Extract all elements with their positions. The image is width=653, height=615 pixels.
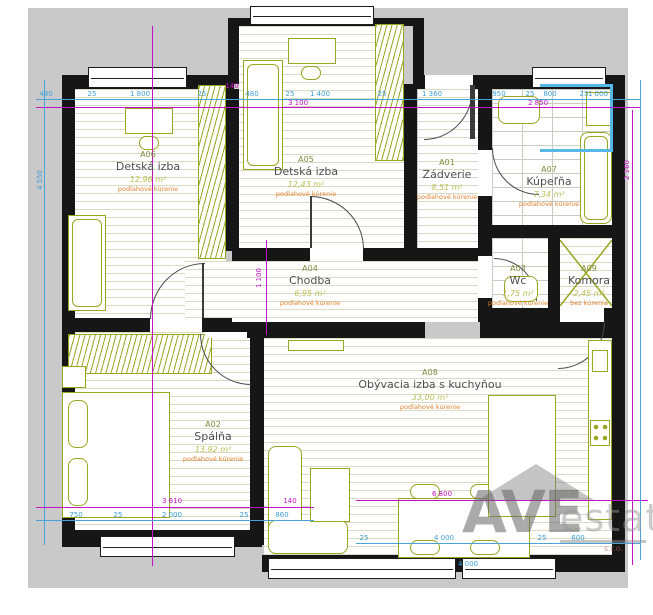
dimension-label: 750 bbox=[69, 511, 82, 519]
dimension-label: 4 000 bbox=[434, 534, 454, 542]
room-name: Obývacia izba s kuchyňou bbox=[355, 378, 505, 392]
window bbox=[88, 67, 187, 88]
room-label-a08: A08Obývacia izba s kuchyňou33,00 m²podla… bbox=[355, 368, 505, 412]
dimension-label: 2 160 bbox=[623, 160, 631, 180]
room-name: Detská izba bbox=[73, 160, 223, 174]
dimension-label: 25 bbox=[286, 90, 295, 98]
dimension-label: 4 550 bbox=[36, 170, 44, 190]
wall bbox=[478, 225, 625, 238]
dimension-label: 2 000 bbox=[162, 511, 182, 519]
door-leaf bbox=[202, 263, 204, 318]
dimension-line bbox=[36, 107, 640, 108]
logo-underline bbox=[560, 540, 646, 543]
door-gap bbox=[150, 318, 202, 332]
room-label-a02: A02Spálňa13,92 m²podlahové kúrenie bbox=[138, 420, 288, 464]
room-code: A02 bbox=[138, 420, 288, 430]
room-area: 13,92 m² bbox=[138, 445, 288, 455]
dimension-label: 25 bbox=[526, 90, 535, 98]
window bbox=[100, 536, 235, 557]
dimension-label: 1 360 bbox=[422, 90, 442, 98]
pillow bbox=[68, 458, 88, 506]
wall bbox=[228, 18, 239, 84]
room-name: Spálňa bbox=[138, 430, 288, 444]
chair bbox=[139, 136, 159, 150]
dimension-line bbox=[640, 80, 641, 560]
room-label-a09: A09Komora2,45 m²bez kúrenia bbox=[514, 264, 653, 308]
room-name: Komora bbox=[514, 274, 653, 288]
room-label-a05: A05Detská izba12,43 m²podlahové kúrenie bbox=[231, 155, 381, 199]
room-area: 12,96 m² bbox=[73, 175, 223, 185]
dimension-line bbox=[36, 507, 314, 508]
room-note: podlahové kúrenie bbox=[138, 455, 288, 463]
dimension-label: 1 000 bbox=[588, 90, 608, 98]
dimension-label: 2 850 bbox=[528, 99, 548, 107]
room-note: podlahové kúrenie bbox=[73, 185, 223, 193]
dimension-line bbox=[44, 80, 45, 545]
room-note: podlahové kúrenie bbox=[231, 190, 381, 198]
logo-word-3: s.r.o. bbox=[604, 544, 623, 553]
sofa bbox=[268, 520, 348, 554]
kitchen-sink bbox=[592, 350, 608, 372]
dimension-label: 25 bbox=[240, 511, 249, 519]
construction-line bbox=[152, 26, 153, 566]
dimension-label: 25 bbox=[114, 511, 123, 519]
room-note: podlahové kúrenie bbox=[355, 403, 505, 411]
room-code: A05 bbox=[231, 155, 381, 165]
room-area: 6,95 m² bbox=[235, 289, 385, 299]
dimension-label: 1 400 bbox=[310, 90, 330, 98]
dimension-label: 25 bbox=[378, 90, 387, 98]
dimension-label: 950 bbox=[492, 90, 505, 98]
logo-word-2: estate bbox=[560, 496, 653, 540]
wall bbox=[62, 318, 232, 332]
dimension-label: 140 bbox=[283, 497, 296, 505]
dimension-label: 6 800 bbox=[432, 490, 452, 498]
door-leaf bbox=[310, 196, 312, 248]
dimension-label: 1 800 bbox=[130, 90, 150, 98]
bed bbox=[68, 215, 106, 311]
dimension-label: 480 bbox=[39, 90, 52, 98]
dimension-label: 140 bbox=[225, 82, 238, 90]
room-code: A06 bbox=[73, 150, 223, 160]
room-area: 2,45 m² bbox=[514, 289, 653, 299]
stove bbox=[590, 420, 610, 446]
desk bbox=[125, 108, 173, 134]
door-gap bbox=[560, 308, 604, 322]
room-name: Detská izba bbox=[231, 165, 381, 179]
dimension-label: 25 bbox=[360, 534, 369, 542]
bed bbox=[243, 60, 283, 170]
coffee-table bbox=[310, 468, 350, 522]
room-area: 33,00 m² bbox=[355, 393, 505, 403]
chair bbox=[301, 66, 321, 80]
room-area: 12,43 m² bbox=[231, 180, 381, 190]
floor-plan: A06Detská izba12,96 m²podlahové kúrenieA… bbox=[0, 0, 653, 615]
dimension-line bbox=[36, 520, 314, 521]
room-code: A09 bbox=[514, 264, 653, 274]
dimension-label: 800 bbox=[543, 90, 556, 98]
room-note: podlahové kúrenie bbox=[474, 200, 624, 208]
room-label-a06: A06Detská izba12,96 m²podlahové kúrenie bbox=[73, 150, 223, 194]
room-area: 7,34 m² bbox=[474, 190, 624, 200]
room-name: Kúpeľňa bbox=[474, 175, 624, 189]
dimension-label: 3 610 bbox=[162, 497, 182, 505]
dimension-label: 1 100 bbox=[255, 268, 263, 288]
dimension-line bbox=[36, 99, 640, 100]
door-gap bbox=[310, 248, 363, 261]
dimension-label: 860 bbox=[275, 511, 288, 519]
dimension-label: 3 100 bbox=[288, 99, 308, 107]
room-code: A07 bbox=[474, 165, 624, 175]
pillow bbox=[68, 400, 88, 448]
tv-bench bbox=[288, 340, 344, 351]
desk bbox=[288, 38, 336, 64]
wall bbox=[232, 322, 425, 338]
dimension-label: 25 bbox=[88, 90, 97, 98]
entrance-door-leaf bbox=[470, 85, 475, 139]
window bbox=[268, 558, 456, 579]
wall bbox=[413, 18, 424, 84]
nightstand bbox=[62, 366, 86, 388]
room-note: bez kúrenia bbox=[514, 299, 653, 307]
room-code: A08 bbox=[355, 368, 505, 378]
dimension-label: 25 bbox=[198, 90, 207, 98]
dimension-label: 4 000 bbox=[458, 560, 478, 568]
wardrobe-hatch bbox=[68, 334, 212, 374]
room-note: podlahové kúrenie bbox=[235, 299, 385, 307]
window bbox=[250, 6, 374, 25]
dimension-label: 480 bbox=[245, 90, 258, 98]
entrance-door-gap bbox=[425, 75, 473, 89]
room-label-a07: A07Kúpeľňa7,34 m²podlahové kúrenie bbox=[474, 165, 624, 209]
